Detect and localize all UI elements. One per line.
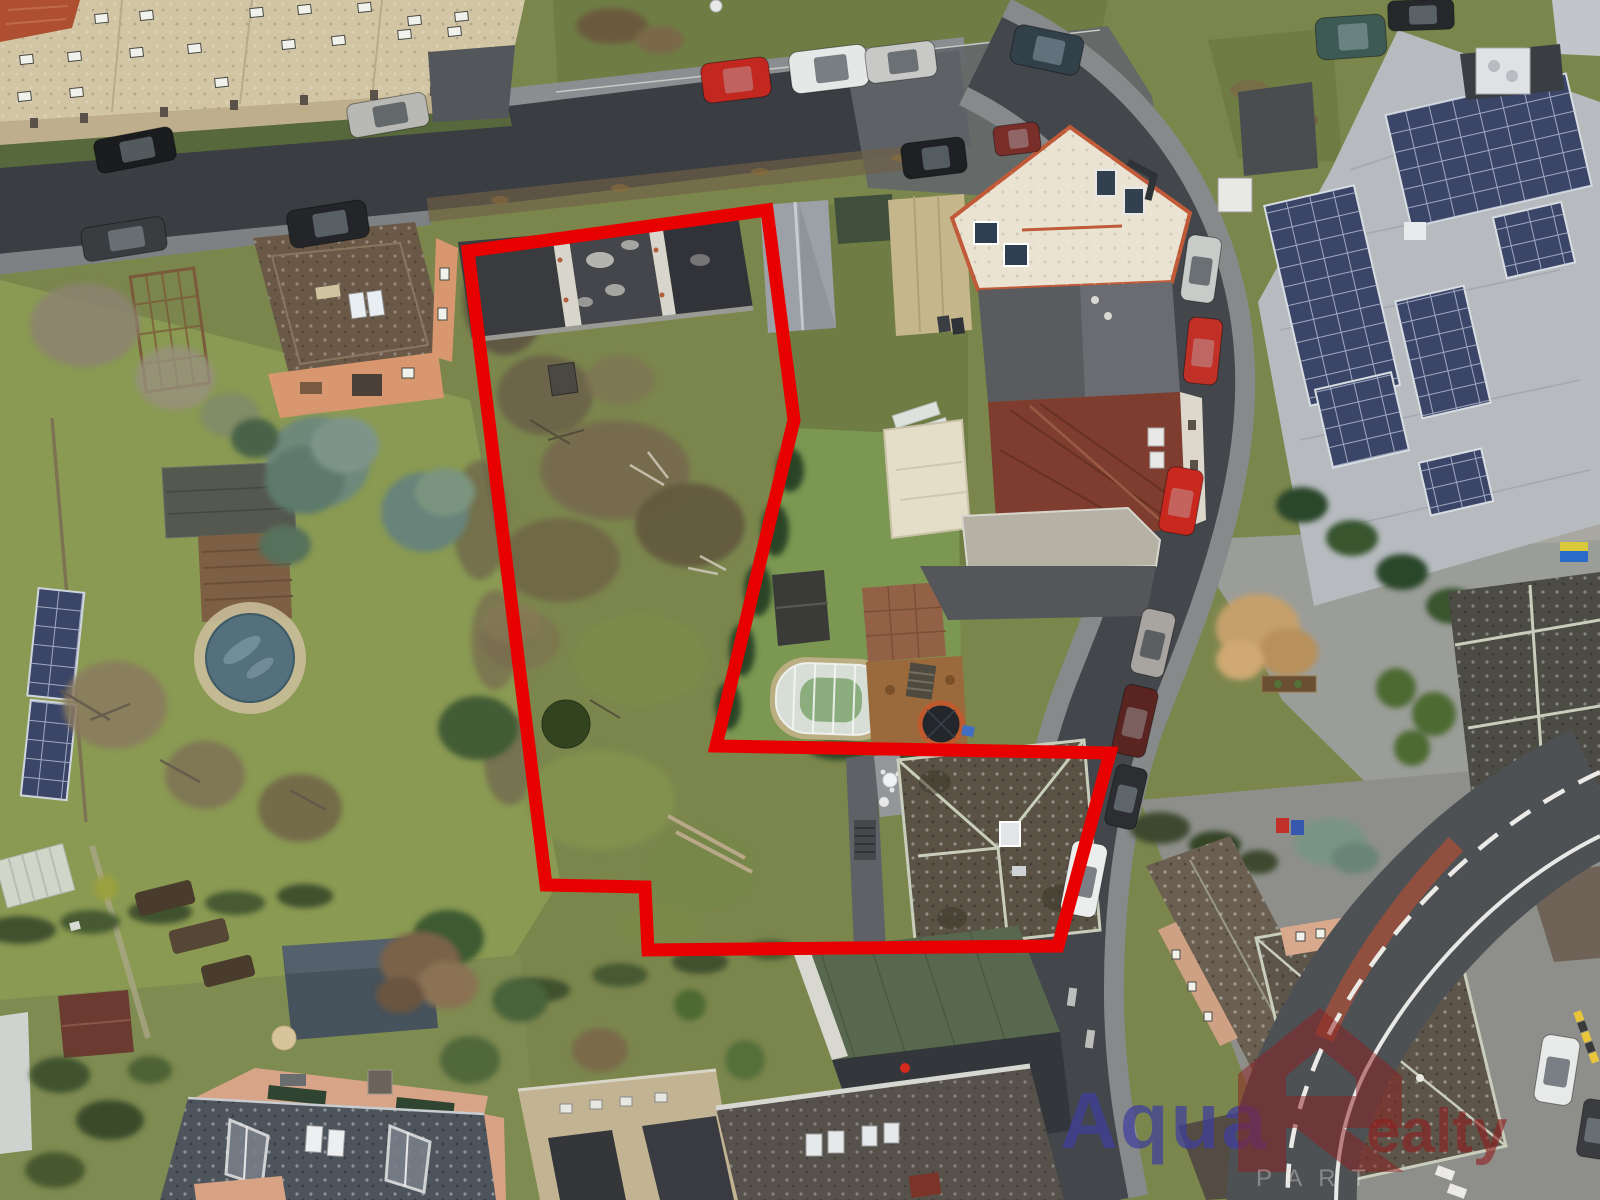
white-shed — [0, 1012, 32, 1154]
exterior-stairs — [854, 820, 876, 860]
hvac-unit — [1476, 48, 1530, 94]
porch-roof — [352, 374, 382, 396]
round-table — [272, 1026, 296, 1050]
driveway — [920, 566, 1156, 620]
rear-garage — [428, 45, 515, 122]
car — [700, 56, 772, 104]
car — [1387, 0, 1454, 31]
watermark-subtext: PART — [1256, 1165, 1382, 1192]
planter-box — [1262, 676, 1316, 692]
garden-table — [883, 773, 897, 787]
watermark-text-aqua: Aqua — [1060, 1076, 1268, 1165]
chimney — [1000, 822, 1020, 846]
car — [1183, 316, 1224, 385]
cream-canopy — [884, 420, 970, 538]
white-chimney-block — [1218, 178, 1252, 212]
chimney-block — [368, 1070, 392, 1094]
aerial-photo-canvas: Aqua ealty PART — [0, 0, 1600, 1200]
skylight — [348, 292, 366, 319]
car — [1315, 14, 1388, 61]
roof-window — [974, 222, 998, 244]
walled-yard — [1238, 82, 1318, 176]
brick-patio — [862, 582, 946, 662]
car — [788, 43, 871, 94]
roof-hatch — [1404, 222, 1426, 240]
car — [900, 136, 968, 180]
person-in-red — [900, 1063, 910, 1073]
brick-chimney — [909, 1172, 942, 1198]
gravel-flat-roof — [962, 508, 1160, 572]
car — [992, 121, 1041, 156]
blue-toy — [961, 725, 975, 737]
yew-bush — [542, 700, 590, 748]
green-flat-roof — [834, 194, 896, 244]
small-garden-shed — [548, 362, 578, 395]
covered-round-pool — [206, 614, 294, 702]
road-sign — [710, 0, 722, 12]
blue-bin-2 — [1291, 820, 1304, 835]
skylight-pair — [305, 1125, 323, 1152]
red-bin — [1276, 818, 1289, 833]
waste-bins — [937, 315, 951, 333]
watermark-text-realty: ealty — [1366, 1097, 1508, 1166]
